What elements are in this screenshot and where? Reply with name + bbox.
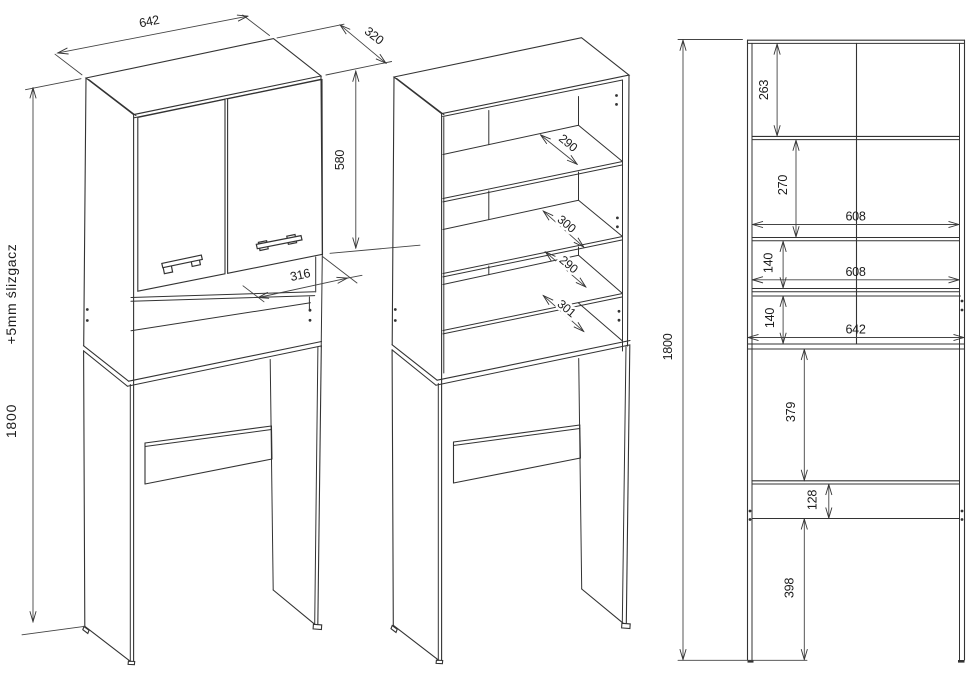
svg-text:290: 290 xyxy=(556,131,580,155)
svg-text:580: 580 xyxy=(333,150,347,170)
svg-text:301: 301 xyxy=(555,297,579,321)
svg-text:140: 140 xyxy=(763,308,777,328)
svg-text:608: 608 xyxy=(845,265,865,279)
svg-text:320: 320 xyxy=(362,24,387,48)
svg-text:642: 642 xyxy=(138,13,161,31)
svg-text:+5mm ślizgacz: +5mm ślizgacz xyxy=(3,244,19,345)
svg-text:642: 642 xyxy=(845,323,865,337)
svg-text:263: 263 xyxy=(757,80,771,100)
svg-text:270: 270 xyxy=(776,175,790,195)
svg-text:128: 128 xyxy=(806,490,820,510)
svg-text:300: 300 xyxy=(555,212,579,236)
svg-text:316: 316 xyxy=(289,266,312,284)
svg-text:608: 608 xyxy=(845,210,865,224)
svg-text:398: 398 xyxy=(783,578,797,598)
svg-text:1800: 1800 xyxy=(661,333,675,360)
svg-text:140: 140 xyxy=(762,253,776,273)
svg-text:379: 379 xyxy=(784,402,798,422)
svg-text:1800: 1800 xyxy=(3,404,19,438)
svg-text:290: 290 xyxy=(557,253,581,277)
